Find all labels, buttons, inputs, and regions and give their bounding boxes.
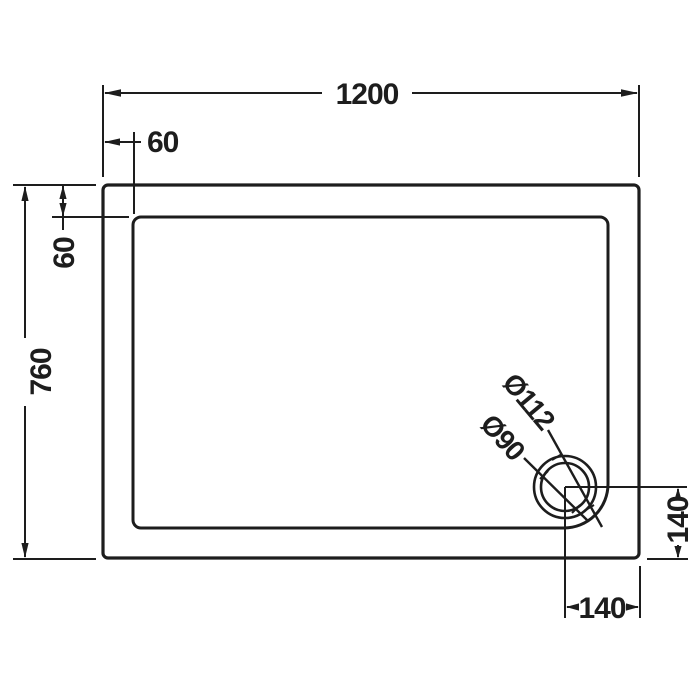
inner-tray-outline: [133, 217, 608, 528]
waste-drain: Ø112 Ø90: [474, 367, 687, 618]
outer-tray-outline: [103, 185, 639, 558]
arrowhead-left: [104, 89, 121, 97]
arrowhead-right: [621, 89, 638, 97]
arrowhead-left: [104, 138, 120, 145]
dim-rim-offset-top: 60: [48, 186, 129, 269]
dim-waste-offset-right: 140: [566, 566, 640, 625]
arrowhead-down: [674, 546, 681, 558]
arrowhead-down: [21, 543, 28, 558]
label-rim-offset-top: 60: [48, 237, 81, 269]
drawing-canvas: Ø112 Ø90 1200 60 60 760: [0, 0, 700, 700]
tray-outlines: [103, 185, 639, 558]
arrowhead-right: [626, 603, 639, 610]
label-overall-width: 1200: [336, 78, 399, 111]
arrowhead-down: [59, 203, 66, 217]
label-waste-offset-right: 140: [578, 592, 625, 625]
label-overall-depth: 760: [25, 348, 58, 395]
arrowhead-up: [21, 186, 28, 201]
arrowhead-left: [566, 603, 579, 610]
dim-waste-offset-bottom: 140: [647, 488, 695, 559]
label-waste-offset-bottom: 140: [662, 496, 695, 543]
arrowhead-up: [59, 186, 66, 200]
label-rim-offset-left: 60: [147, 126, 179, 159]
dim-rim-offset-left: 60: [104, 126, 179, 214]
shower-tray-technical-drawing: Ø112 Ø90 1200 60 60 760: [0, 0, 700, 700]
dim-overall-width: 1200: [103, 78, 639, 177]
